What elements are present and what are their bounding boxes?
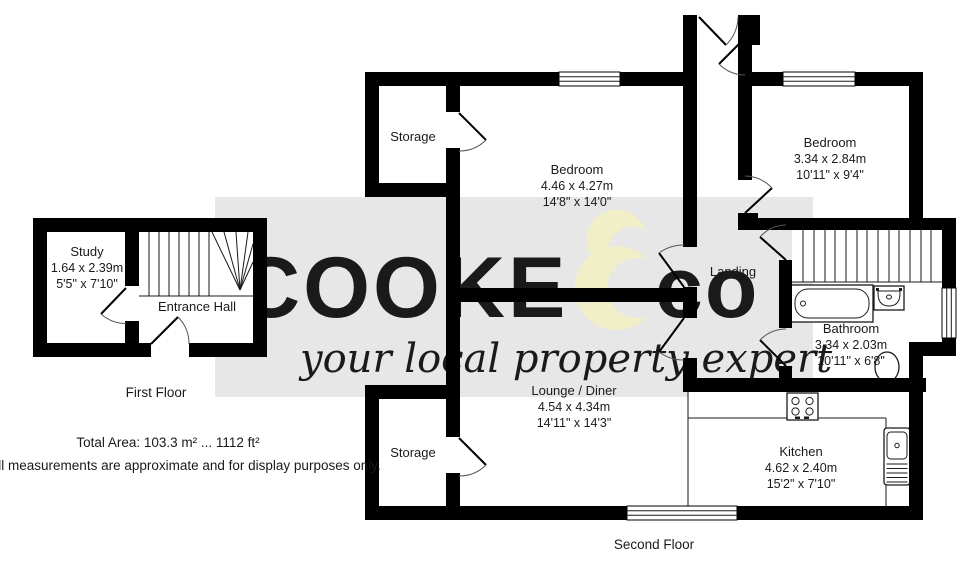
lounge-imperial: 14'11" x 14'3" [537,416,612,430]
bathroom-label: Bathroom [823,321,879,336]
bedroom-main-metric: 4.46 x 4.27m [541,179,613,193]
study-label: Study [70,244,104,259]
door-storage-bottom [459,438,486,476]
entrance-hall-label: Entrance Hall [158,299,236,314]
bedroom-second-metric: 3.34 x 2.84m [794,152,866,166]
bathroom-imperial: 10'11" x 6'8" [817,354,885,368]
door-storage-top [459,113,486,151]
kitchen-sink-icon [884,428,910,485]
study-metric: 1.64 x 2.39m [51,261,123,275]
landing-label: Landing [710,264,756,279]
study-imperial: 5'5" x 7'10" [56,277,118,291]
window-lounge [627,506,737,520]
stove-icon [787,393,818,420]
kitchen-metric: 4.62 x 2.40m [765,461,837,475]
floorplan-drawing: COOKE co your local property expert [0,0,980,562]
storage-bottom-label: Storage [390,445,436,460]
bedroom-main-label: Bedroom [551,162,604,177]
window-bedroom-main [559,72,620,86]
second-floor-title: Second Floor [614,537,695,552]
floorplan-page: COOKE co your local property expert [0,0,980,562]
first-floor-title: First Floor [126,385,187,400]
bathroom-metric: 3.34 x 2.03m [815,338,887,352]
door-entry-vestibule [699,17,738,45]
bathtub-icon [791,285,873,322]
bedroom-second-label: Bedroom [804,135,857,150]
window-bedroom-second [783,72,855,86]
total-area-text: Total Area: 103.3 m² ... 1112 ft² [76,435,260,450]
watermark-tagline: your local property expert [298,336,833,382]
lounge-label: Lounge / Diner [531,383,617,398]
bedroom-main-imperial: 14'8" x 14'0" [543,195,612,209]
bathroom-sink-icon [874,286,904,310]
storage-top-label: Storage [390,129,436,144]
lounge-metric: 4.54 x 4.34m [538,400,610,414]
window-bathroom [942,288,956,338]
bedroom-second-imperial: 10'11" x 9'4" [796,168,864,182]
kitchen-imperial: 15'2" x 7'10" [767,477,836,491]
disclaimer-text: All measurements are approximate and for… [0,458,381,473]
kitchen-label: Kitchen [779,444,822,459]
